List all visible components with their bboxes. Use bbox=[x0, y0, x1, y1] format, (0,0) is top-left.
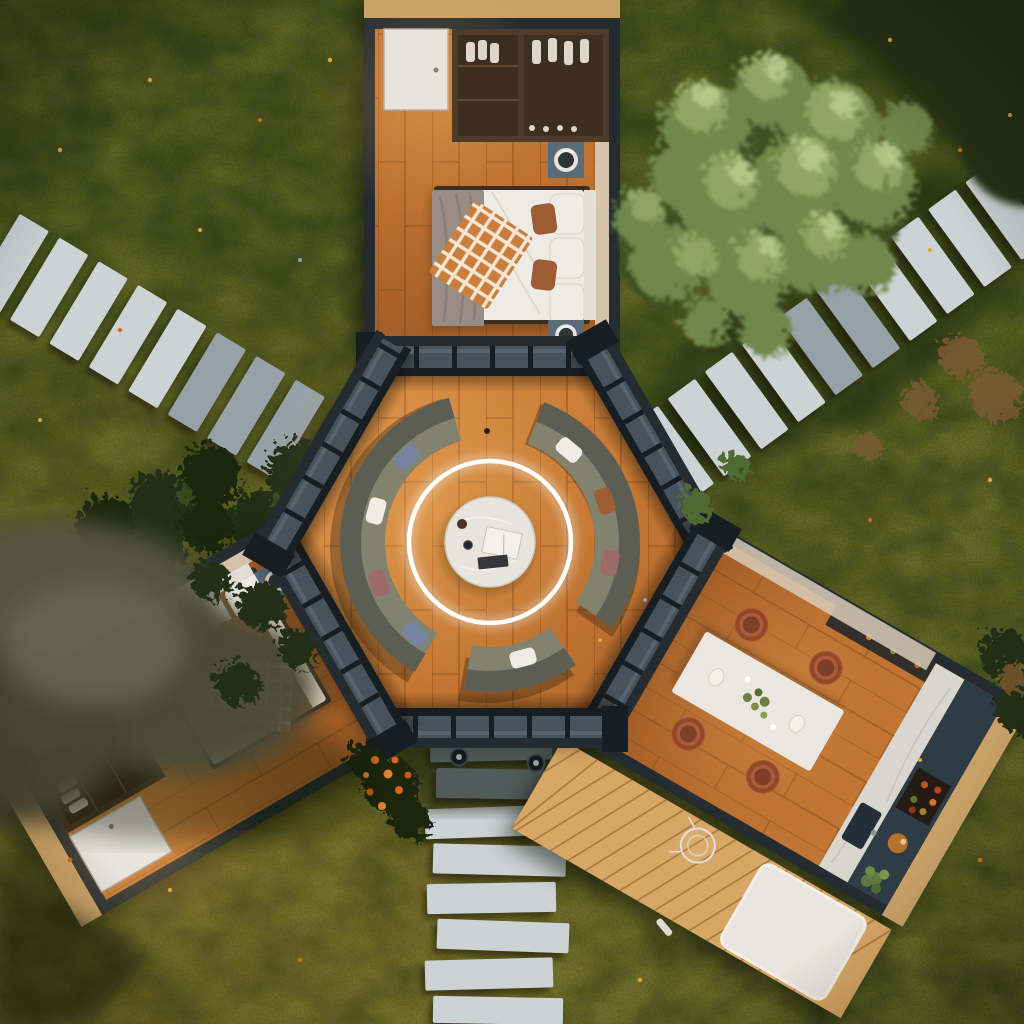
render-canvas bbox=[0, 0, 1024, 1024]
vignette bbox=[0, 0, 1024, 1024]
aerial-architectural-render bbox=[0, 0, 1024, 1024]
